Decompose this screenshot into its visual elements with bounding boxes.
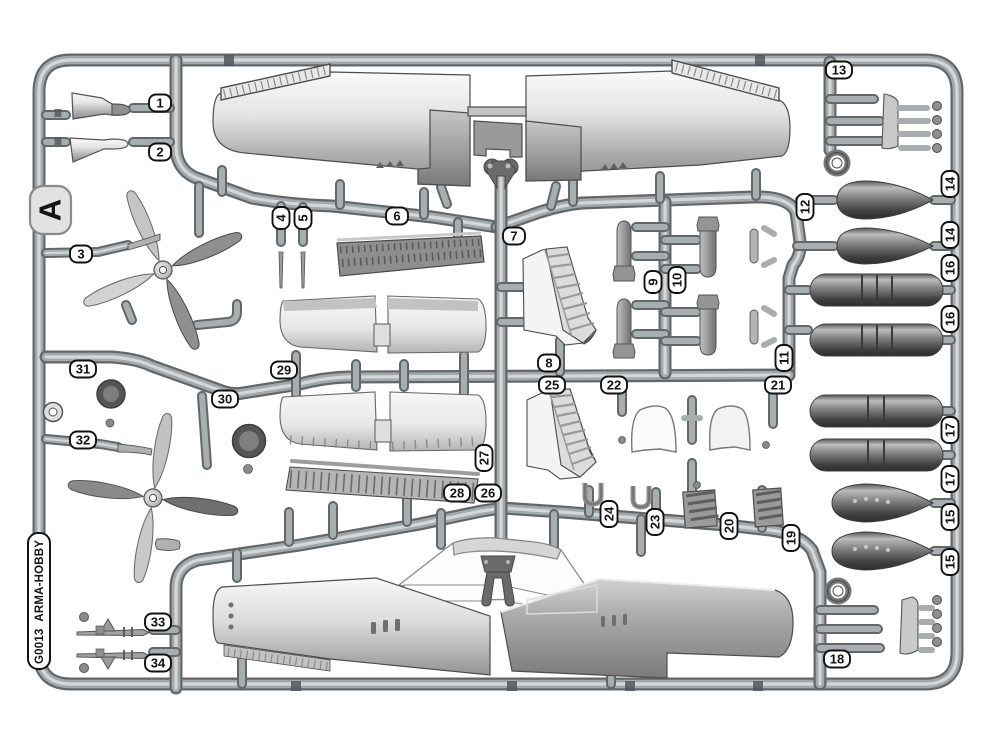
svg-text:28: 28 [450,486,464,501]
svg-text:15: 15 [943,510,958,524]
svg-text:5: 5 [296,214,311,221]
svg-text:29: 29 [277,363,291,378]
svg-text:G0013 ARMA-HOBBY: G0013 ARMA-HOBBY [34,540,46,664]
svg-text:24: 24 [602,506,617,521]
svg-text:30: 30 [218,392,232,407]
svg-text:1: 1 [156,96,163,111]
svg-text:14: 14 [943,176,958,191]
svg-text:22: 22 [607,378,621,393]
svg-text:25: 25 [545,378,559,393]
svg-text:27: 27 [477,451,492,465]
svg-text:12: 12 [798,200,813,214]
svg-text:17: 17 [943,423,958,437]
svg-text:4: 4 [274,214,289,222]
svg-text:19: 19 [784,531,799,545]
svg-text:2: 2 [156,145,163,160]
svg-text:15: 15 [943,555,958,569]
svg-text:3: 3 [77,247,84,262]
svg-text:A: A [33,199,68,221]
svg-text:16: 16 [943,261,958,275]
svg-text:23: 23 [648,515,663,529]
svg-text:7: 7 [510,229,517,244]
svg-text:33: 33 [151,615,165,630]
svg-text:26: 26 [481,486,495,501]
svg-text:13: 13 [832,63,846,78]
svg-text:6: 6 [393,209,400,224]
svg-text:18: 18 [830,652,844,667]
svg-text:17: 17 [943,472,958,486]
svg-text:32: 32 [76,433,90,448]
svg-text:14: 14 [943,227,958,242]
svg-text:34: 34 [151,656,166,671]
svg-text:10: 10 [670,273,685,287]
svg-text:31: 31 [76,362,90,377]
svg-text:21: 21 [771,378,785,393]
svg-text:16: 16 [943,312,958,326]
svg-text:20: 20 [722,519,737,533]
svg-text:11: 11 [777,351,792,365]
svg-text:9: 9 [646,278,661,285]
svg-text:8: 8 [545,356,552,371]
